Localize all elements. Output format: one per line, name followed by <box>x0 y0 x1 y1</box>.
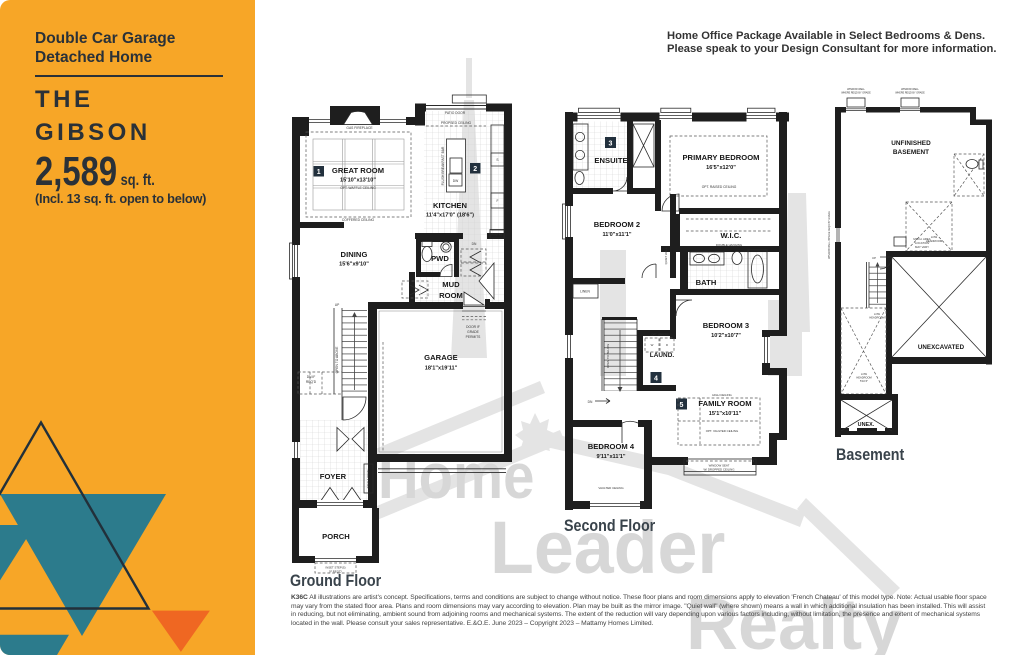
svg-text:4: 4 <box>654 376 658 383</box>
svg-text:WHERE REQD BY GRADE: WHERE REQD BY GRADE <box>895 92 925 95</box>
svg-text:FOYER: FOYER <box>320 472 347 481</box>
svg-text:PROPSED CEILING: PROPSED CEILING <box>441 121 472 125</box>
svg-text:OPT. RAISED CEILING: OPT. RAISED CEILING <box>702 185 737 189</box>
svg-text:OPEN TO BELOW: OPEN TO BELOW <box>606 344 610 368</box>
svg-text:WINDOW WELL WHERE REQD BY GRAD: WINDOW WELL WHERE REQD BY GRADE <box>828 211 831 259</box>
svg-text:LOW: LOW <box>874 312 880 316</box>
svg-text:WHERE REQD BY GRADE: WHERE REQD BY GRADE <box>841 92 871 95</box>
svg-text:COFFERED CEILING: COFFERED CEILING <box>342 218 375 222</box>
svg-text:OPT. WAFFLE CEILING: OPT. WAFFLE CEILING <box>340 186 376 190</box>
svg-text:QUIET WALL: QUIET WALL <box>664 247 668 264</box>
svg-text:OPT. UPPERS: OPT. UPPERS <box>651 333 668 337</box>
svg-text:GRADE: GRADE <box>467 330 480 334</box>
svg-text:ENSUITE: ENSUITE <box>594 156 627 165</box>
svg-text:FLUSH BREAKFAST BAR: FLUSH BREAKFAST BAR <box>441 146 445 185</box>
svg-text:15'1"x10'11": 15'1"x10'11" <box>709 411 742 417</box>
svg-text:UP: UP <box>872 256 876 260</box>
svg-text:BEDROOM 2: BEDROOM 2 <box>594 220 640 229</box>
svg-text:BASEMENT: BASEMENT <box>893 149 929 156</box>
svg-text:D: D <box>666 343 668 347</box>
svg-text:2: 2 <box>473 166 477 173</box>
svg-text:BATH: BATH <box>696 278 717 287</box>
svg-text:9'11"x11'1": 9'11"x11'1" <box>596 454 625 460</box>
svg-text:PERMITS: PERMITS <box>466 335 481 339</box>
svg-text:15'6"x9'10": 15'6"x9'10" <box>339 262 369 268</box>
svg-text:UNFINISHED: UNFINISHED <box>891 140 931 147</box>
svg-text:OPEN TO ABOVE: OPEN TO ABOVE <box>335 346 339 374</box>
svg-text:DINING: DINING <box>341 250 368 259</box>
svg-text:PWD: PWD <box>431 254 449 263</box>
svg-text:W.I.C.: W.I.C. <box>721 231 742 240</box>
svg-text:DW: DW <box>453 179 459 183</box>
svg-text:11'0"x11'1": 11'0"x11'1" <box>602 232 631 238</box>
svg-text:PANTRY: PANTRY <box>491 233 503 237</box>
svg-text:HEADROOM: HEADROOM <box>856 376 871 380</box>
svg-text:10'2"x10'7": 10'2"x10'7" <box>711 333 741 339</box>
svg-text:PRIMARY BEDROOM: PRIMARY BEDROOM <box>682 153 759 162</box>
svg-text:KITCHEN: KITCHEN <box>433 201 467 210</box>
svg-text:18'1"x19'11": 18'1"x19'11" <box>425 366 458 372</box>
svg-text:LINEN: LINEN <box>580 290 590 294</box>
svg-text:VAULTED CEILING: VAULTED CEILING <box>598 486 624 490</box>
svg-text:ROOM: ROOM <box>439 291 463 300</box>
svg-text:GREAT ROOM: GREAT ROOM <box>332 166 384 175</box>
svg-text:UNEXCAVATED: UNEXCAVATED <box>918 344 965 351</box>
svg-text:BEDROOM 4: BEDROOM 4 <box>588 442 635 451</box>
svg-text:MAY VARY: MAY VARY <box>915 245 929 249</box>
svg-text:15'10"x13'10": 15'10"x13'10" <box>340 178 376 184</box>
svg-text:DN: DN <box>472 242 477 246</box>
svg-text:F: F <box>496 199 498 203</box>
svg-text:3: 3 <box>609 141 613 148</box>
svg-text:DN IF: DN IF <box>307 375 316 379</box>
svg-text:REQ'D: REQ'D <box>306 380 317 384</box>
svg-text:PATIO DOOR: PATIO DOOR <box>445 111 466 115</box>
svg-text:1: 1 <box>317 169 321 176</box>
svg-text:DOOR IF: DOOR IF <box>466 325 480 329</box>
svg-text:DN: DN <box>588 400 593 404</box>
svg-text:HEADROOM: HEADROOM <box>869 316 884 320</box>
svg-text:STEP & DROP: STEP & DROP <box>366 469 370 488</box>
svg-text:UP: UP <box>335 303 340 307</box>
svg-text:UNEX.: UNEX. <box>858 422 875 428</box>
svg-text:FAMILY ROOM: FAMILY ROOM <box>698 399 751 408</box>
svg-text:LOW: LOW <box>861 372 867 376</box>
svg-text:GARAGE: GARAGE <box>424 353 458 362</box>
svg-text:LAUND.: LAUND. <box>650 352 675 359</box>
svg-text:11'4"x17'0" (18'6"): 11'4"x17'0" (18'6") <box>426 213 474 219</box>
svg-text:OPT. VAULTED CEILING: OPT. VAULTED CEILING <box>706 429 739 433</box>
svg-text:16'5"x12'0": 16'5"x12'0" <box>706 165 736 171</box>
svg-text:HIGH CEILING: HIGH CEILING <box>712 393 732 397</box>
svg-text:W: W <box>651 343 654 347</box>
svg-text:GAS FIREPLACE: GAS FIREPLACE <box>346 126 373 130</box>
svg-text:BEDROOM 3: BEDROOM 3 <box>703 321 749 330</box>
svg-text:5: 5 <box>680 402 684 409</box>
svg-text:PORCH: PORCH <box>322 532 350 541</box>
svg-text:MUD: MUD <box>442 280 460 289</box>
svg-text:5'10.5": 5'10.5" <box>860 379 868 383</box>
svg-text:W/ DROPPED CEILING: W/ DROPPED CEILING <box>704 467 736 471</box>
